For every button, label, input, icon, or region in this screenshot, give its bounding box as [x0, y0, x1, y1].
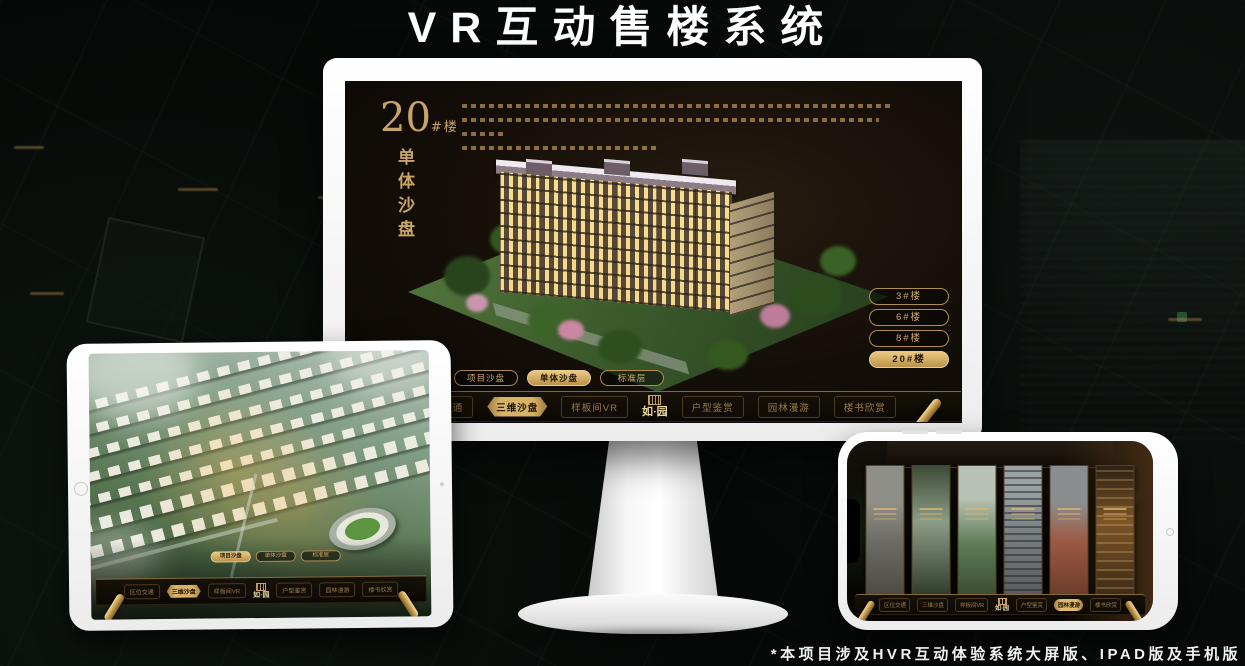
gallery-panel[interactable] [912, 465, 951, 599]
gallery-panel[interactable] [1004, 465, 1043, 599]
poster: VR互动售楼系统 20#楼 单体沙盘 [0, 0, 1245, 666]
roof-dormer [682, 159, 708, 176]
brand-logo: 如·园 [995, 598, 1009, 612]
map-label-speck [1168, 318, 1202, 321]
gallery-panel[interactable] [1050, 465, 1089, 599]
map-label-speck [30, 292, 64, 295]
nav-floorplan[interactable]: 户型鉴赏 [682, 396, 744, 418]
ipad-screen: 项目沙盘 单体沙盘 标准层 区位交通 三维沙盘 样板间VR 如·园 户型鉴赏 园… [89, 350, 432, 620]
poster-title: VR互动售楼系统 [0, 0, 1245, 56]
nav-showroom-vr[interactable]: 样板间VR [208, 583, 246, 598]
tab-single-sandtable[interactable]: 单体沙盘 [527, 370, 591, 386]
nav-location-traffic[interactable]: 区位交通 [124, 584, 160, 599]
gallery-panel[interactable] [866, 465, 905, 599]
nav-garden-roam[interactable]: 园林漫游 [1054, 599, 1083, 611]
nav-brochure[interactable]: 楼书欣赏 [834, 396, 896, 418]
model-building [500, 152, 780, 320]
tab-standard-floor[interactable]: 标准层 [301, 550, 341, 561]
tree [790, 274, 842, 316]
phone-device: 区位交通 三维沙盘 样板间VR 如·园 户型鉴赏 园林漫游 楼书欣赏 [838, 432, 1178, 630]
nav-showroom-vr[interactable]: 样板间VR [955, 598, 988, 612]
roof-dormer [604, 159, 630, 176]
tab-project-sandtable[interactable]: 项目沙盘 [454, 370, 518, 386]
nav-showroom-vr[interactable]: 样板间VR [561, 396, 628, 418]
tree [444, 256, 490, 296]
logo-text: 如·园 [642, 407, 668, 418]
map-label-speck [178, 188, 218, 191]
camera-icon [1166, 528, 1174, 536]
floor-button-6[interactable]: 6#楼 [869, 309, 949, 326]
brand-logo: 如·园 [253, 582, 270, 598]
nav-floorplan[interactable]: 户型鉴赏 [1016, 598, 1047, 612]
building-number-value: 20 [380, 95, 431, 141]
monitor-stand-neck [587, 438, 719, 606]
blossom-tree [466, 294, 488, 312]
nav-garden-roam[interactable]: 园林漫游 [758, 396, 820, 418]
nav-location-traffic[interactable]: 区位交通 [879, 598, 910, 612]
tab-project-sandtable[interactable]: 项目沙盘 [211, 551, 251, 562]
nav-3d-sandtable[interactable]: 三维沙盘 [487, 397, 547, 417]
nav-3d-sandtable[interactable]: 三维沙盘 [917, 598, 948, 612]
nav-brochure[interactable]: 楼书欣赏 [362, 582, 398, 597]
gallery-panel[interactable] [1096, 465, 1135, 599]
ipad-navbar: 区位交通 三维沙盘 样板间VR 如·园 户型鉴赏 园林漫游 楼书欣赏 [96, 575, 426, 605]
nav-3d-sandtable[interactable]: 三维沙盘 [167, 585, 201, 598]
phone-screen: 区位交通 三维沙盘 样板间VR 如·园 户型鉴赏 园林漫游 楼书欣赏 [847, 441, 1153, 621]
tree [708, 340, 748, 370]
logo-seal-icon [998, 598, 1007, 605]
logo-text: 如·园 [995, 606, 1009, 612]
gallery-panel[interactable] [958, 465, 997, 599]
building-number-unit: #楼 [431, 120, 459, 135]
building-facade [500, 172, 732, 312]
phone-navbar: 区位交通 三维沙盘 样板间VR 如·园 户型鉴赏 园林漫游 楼书欣赏 [855, 594, 1145, 615]
tree [598, 330, 642, 364]
phone-notch [847, 499, 860, 563]
logo-text: 如·园 [253, 591, 269, 598]
brand-logo: 如·园 [642, 395, 668, 418]
floor-button-8[interactable]: 8#楼 [869, 330, 949, 347]
tab-single-sandtable[interactable]: 单体沙盘 [256, 551, 296, 562]
map-label-speck [14, 146, 44, 149]
building-model [408, 154, 888, 392]
logo-seal-icon [648, 395, 661, 405]
home-button-icon[interactable] [74, 481, 88, 495]
volume-button[interactable] [936, 430, 962, 434]
floor-button-3[interactable]: 3#楼 [869, 288, 949, 305]
background-building [1020, 140, 1245, 440]
gallery-panels [866, 465, 1135, 599]
nav-floorplan[interactable]: 户型鉴赏 [276, 582, 312, 597]
nav-brochure[interactable]: 楼书欣赏 [1090, 598, 1121, 612]
blossom-tree [558, 320, 584, 340]
camera-icon [440, 482, 444, 486]
ipad-device: 项目沙盘 单体沙盘 标准层 区位交通 三维沙盘 样板间VR 如·园 户型鉴赏 园… [67, 340, 454, 631]
tab-standard-floor[interactable]: 标准层 [600, 370, 664, 386]
building-side-wall [730, 192, 774, 317]
nav-garden-roam[interactable]: 园林漫游 [319, 582, 355, 597]
footnote-text: *本项目涉及HVR互动体验系统大屏版、IPAD版及手机版 [771, 643, 1241, 664]
monitor-sub-tabs: 项目沙盘 单体沙盘 标准层 [454, 370, 664, 386]
monitor-stand-base [518, 594, 788, 634]
building-number: 20#楼 [380, 98, 459, 138]
volume-button[interactable] [902, 430, 928, 434]
floor-selector: 3#楼 6#楼 8#楼 20#楼 [869, 288, 949, 372]
logo-seal-icon [256, 582, 266, 590]
tree [820, 246, 856, 276]
ipad-sub-tabs: 项目沙盘 单体沙盘 标准层 [211, 550, 341, 562]
floor-button-20[interactable]: 20#楼 [869, 351, 949, 368]
